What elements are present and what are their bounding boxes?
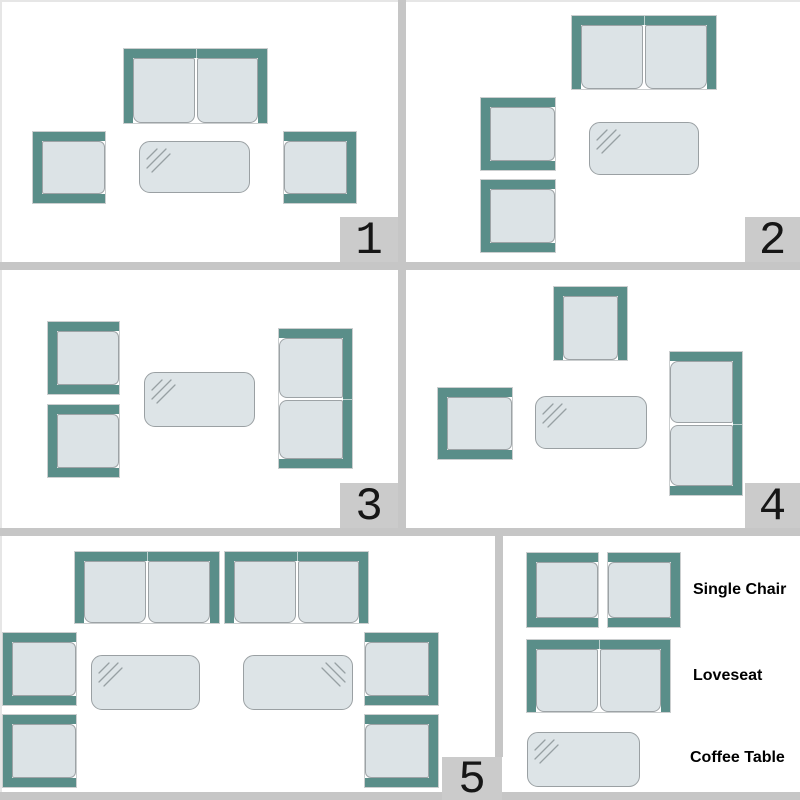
chair-arm-bar: [536, 618, 598, 627]
sofa-back-bar: [733, 352, 742, 495]
chair-arm-bar: [284, 194, 347, 203]
loveseat: [279, 329, 352, 468]
seat-cushion: [447, 397, 512, 450]
chair-arm-bar: [284, 132, 347, 141]
chair-arm-bar: [12, 715, 76, 724]
single-chair: [608, 553, 680, 627]
seat-cushion: [12, 642, 76, 696]
single-chair: [365, 633, 438, 705]
chair-back-bar: [48, 322, 57, 394]
single-chair: [48, 405, 119, 477]
sofa-arm-bar: [670, 352, 742, 361]
sofa-seam: [343, 399, 352, 400]
seat-cushion: [57, 414, 119, 468]
single-chair: [365, 715, 438, 787]
chair-back-bar: [347, 132, 356, 203]
panel-divider: [0, 262, 800, 270]
layout-number-badge-1: 1: [340, 217, 398, 262]
chair-back-bar: [554, 287, 627, 296]
seat-cushion: [133, 58, 195, 123]
coffee-table: [139, 141, 250, 193]
sofa-back-bar: [75, 552, 219, 561]
chair-arm-bar: [536, 553, 598, 562]
chair-back-bar: [48, 405, 57, 477]
legend-label-loveseat: Loveseat: [693, 667, 762, 685]
seat-cushion: [365, 642, 429, 696]
layout-number: 4: [759, 484, 787, 530]
seat-cushion: [581, 25, 643, 89]
chair-back-bar: [3, 633, 12, 705]
sofa-back-bar: [225, 552, 368, 561]
sofa-arm-bar: [527, 640, 536, 712]
single-chair: [284, 132, 356, 203]
single-chair: [554, 287, 627, 360]
single-chair: [3, 633, 76, 705]
chair-arm-bar: [618, 296, 627, 360]
seat-cushion: [490, 107, 555, 161]
sofa-arm-bar: [225, 552, 234, 623]
loveseat: [75, 552, 219, 623]
seat-cushion: [279, 400, 343, 460]
coffee-table: [527, 732, 640, 787]
seat-cushion: [608, 562, 671, 618]
chair-back-bar: [429, 633, 438, 705]
chair-back-bar: [481, 180, 490, 252]
chair-arm-bar: [12, 633, 76, 642]
glass-shine-icon: [532, 737, 562, 767]
chair-arm-bar: [490, 243, 555, 252]
seat-cushion: [42, 141, 105, 194]
layout-number-badge-4: 4: [745, 483, 800, 528]
seat-cushion: [12, 724, 76, 778]
coffee-table: [535, 396, 647, 449]
loveseat: [225, 552, 368, 623]
furniture-layout-diagram: 1 2 3 4 5 Single Chair Loveseat Coffee T…: [0, 0, 800, 800]
sofa-arm-bar: [279, 459, 352, 468]
left-edge-line: [0, 0, 2, 792]
sofa-arm-bar: [661, 640, 670, 712]
chair-arm-bar: [490, 98, 555, 107]
legend-label-coffee-table: Coffee Table: [690, 749, 785, 767]
loveseat: [572, 16, 716, 89]
sofa-seam: [196, 49, 197, 58]
sofa-seam: [644, 16, 645, 25]
seat-cushion: [148, 561, 210, 623]
chair-arm-bar: [447, 450, 512, 459]
seat-cushion: [279, 338, 343, 398]
sofa-arm-bar: [707, 16, 716, 89]
chair-arm-bar: [490, 180, 555, 189]
glass-shine-icon: [540, 401, 570, 431]
layout-number: 1: [355, 218, 383, 264]
seat-cushion: [57, 331, 119, 385]
panel-divider: [0, 792, 800, 800]
chair-arm-bar: [12, 778, 76, 787]
loveseat: [124, 49, 267, 123]
sofa-seam: [147, 552, 148, 561]
seat-cushion: [600, 649, 662, 712]
single-chair: [438, 388, 512, 459]
single-chair: [48, 322, 119, 394]
layout-number-badge-2: 2: [745, 217, 800, 262]
chair-back-bar: [33, 132, 42, 203]
coffee-table: [91, 655, 200, 710]
single-chair: [481, 180, 555, 252]
single-chair: [527, 553, 598, 627]
panel-divider: [495, 536, 503, 757]
coffee-table: [144, 372, 255, 427]
seat-cushion: [234, 561, 296, 623]
glass-shine-icon: [149, 377, 179, 407]
sofa-arm-bar: [279, 329, 352, 338]
sofa-back-bar: [343, 329, 352, 468]
sofa-arm-bar: [75, 552, 84, 623]
sofa-arm-bar: [359, 552, 368, 623]
sofa-back-bar: [124, 49, 267, 58]
legend-label-single-chair: Single Chair: [693, 581, 786, 599]
seat-cushion: [84, 561, 146, 623]
sofa-seam: [297, 552, 298, 561]
loveseat: [527, 640, 670, 712]
chair-back-bar: [438, 388, 447, 459]
chair-arm-bar: [57, 322, 119, 331]
sofa-seam: [733, 424, 742, 425]
seat-cushion: [536, 562, 598, 618]
chair-arm-bar: [365, 715, 429, 724]
seat-cushion: [670, 361, 733, 423]
chair-arm-bar: [365, 696, 429, 705]
chair-back-bar: [481, 98, 490, 170]
loveseat: [670, 352, 742, 495]
sofa-arm-bar: [670, 486, 742, 495]
seat-cushion: [490, 189, 555, 243]
sofa-arm-bar: [572, 16, 581, 89]
chair-back-bar: [3, 715, 12, 787]
chair-arm-bar: [447, 388, 512, 397]
chair-arm-bar: [42, 194, 105, 203]
chair-arm-bar: [365, 633, 429, 642]
sofa-arm-bar: [258, 49, 267, 123]
sofa-arm-bar: [210, 552, 219, 623]
layout-number: 5: [458, 757, 486, 800]
seat-cushion: [563, 296, 618, 360]
seat-cushion: [536, 649, 598, 712]
panel-divider: [0, 528, 800, 536]
chair-arm-bar: [57, 405, 119, 414]
chair-arm-bar: [365, 778, 429, 787]
layout-number-badge-3: 3: [340, 483, 398, 528]
glass-shine-icon: [594, 127, 624, 157]
glass-shine-icon: [96, 660, 126, 690]
sofa-back-bar: [572, 16, 716, 25]
chair-arm-bar: [608, 618, 671, 627]
layout-number-badge-5: 5: [442, 757, 502, 800]
layout-number: 3: [355, 484, 383, 530]
chair-arm-bar: [490, 161, 555, 170]
chair-back-bar: [429, 715, 438, 787]
seat-cushion: [670, 425, 733, 487]
sofa-seam: [599, 640, 600, 649]
seat-cushion: [365, 724, 429, 778]
glass-shine-icon: [144, 146, 174, 176]
coffee-table: [243, 655, 353, 710]
sofa-back-bar: [527, 640, 670, 649]
layout-number: 2: [759, 218, 787, 264]
seat-cushion: [284, 141, 347, 194]
chair-arm-bar: [12, 696, 76, 705]
chair-arm-bar: [554, 296, 563, 360]
chair-arm-bar: [57, 385, 119, 394]
seat-cushion: [197, 58, 259, 123]
single-chair: [33, 132, 105, 203]
chair-arm-bar: [608, 553, 671, 562]
chair-back-bar: [671, 553, 680, 627]
coffee-table: [589, 122, 699, 175]
glass-shine-icon: [318, 660, 348, 690]
chair-back-bar: [527, 553, 536, 627]
seat-cushion: [298, 561, 360, 623]
single-chair: [481, 98, 555, 170]
chair-arm-bar: [42, 132, 105, 141]
seat-cushion: [645, 25, 707, 89]
chair-arm-bar: [57, 468, 119, 477]
sofa-arm-bar: [124, 49, 133, 123]
single-chair: [3, 715, 76, 787]
